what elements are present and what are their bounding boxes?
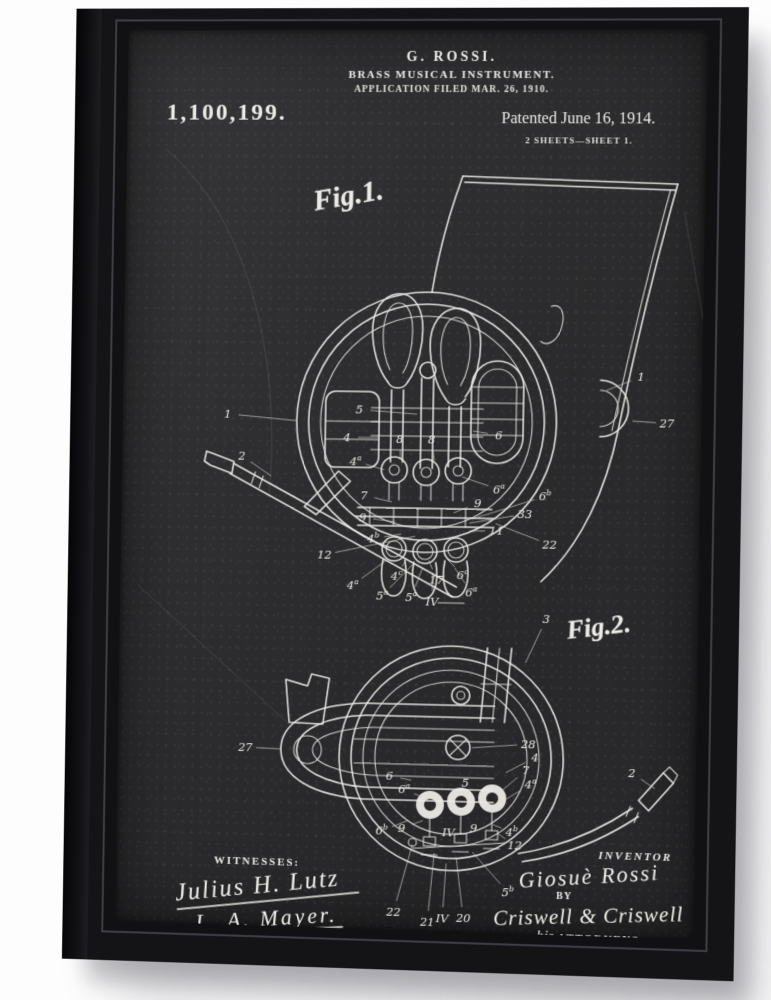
- figure-ref-number: 20: [455, 911, 471, 926]
- figure-ref-number: 9: [398, 821, 406, 835]
- leader-line: [632, 421, 655, 423]
- leader-line: [256, 748, 281, 749]
- chalk-smudge: [161, 149, 277, 498]
- fig1-valve-slides: [325, 293, 525, 470]
- figure-ref-number: 6b: [375, 822, 388, 837]
- figure-ref-number: 2: [237, 449, 245, 463]
- figure-ref-number: 1: [224, 407, 231, 421]
- figure-ref-number: 4a: [523, 776, 537, 792]
- figure-ref-number: 9: [474, 496, 482, 510]
- leader-line: [412, 820, 423, 824]
- leader-line: [370, 410, 417, 414]
- leader-line: [428, 853, 434, 911]
- chalkboard-canvas: G. ROSSI. BRASS MUSICAL INSTRUMENT. APPL…: [115, 29, 708, 939]
- figure-ref-number: IV: [425, 594, 441, 608]
- figure-ref-number: 7: [522, 763, 530, 777]
- leader-line: [472, 744, 517, 749]
- figure-ref-number: 9: [470, 821, 478, 835]
- figure-ref-number: 3: [543, 612, 551, 626]
- figure-ref-number: 5b: [376, 587, 389, 602]
- leader-line: [362, 559, 387, 579]
- leader-line: [525, 629, 541, 663]
- figure-ref-number: 5: [462, 776, 470, 790]
- figure-ref-number: 9: [359, 510, 366, 524]
- figure-ref-number: 8: [428, 432, 436, 446]
- leader-line: [400, 778, 411, 780]
- figure-ref-number: 2: [627, 766, 636, 780]
- figure-ref-number: IV: [441, 825, 457, 840]
- figure-ref-number: 27: [237, 740, 253, 754]
- figure-ref-number: 21: [419, 915, 435, 930]
- figure-ref-number: 6: [386, 769, 394, 783]
- figure-ref-number: 17: [429, 572, 445, 586]
- inventor-block: INVENTOR Giosuè Rossi BY Criswell & Cris…: [489, 847, 689, 940]
- figure-ref-number: 4: [342, 430, 350, 444]
- figure-ref-number: 5a: [405, 589, 418, 604]
- figure-ref-number: 1: [637, 370, 645, 384]
- fig2-top-tubes: [446, 647, 512, 761]
- figure-ref-number: 28: [520, 737, 536, 752]
- figure-ref-number: 6a: [465, 584, 478, 599]
- figure-ref-number: IV: [435, 911, 451, 926]
- leader-line: [455, 858, 462, 907]
- inventor-signature: Giosuè Rossi: [489, 858, 689, 895]
- frame-side-face: [62, 9, 102, 960]
- attorneys-signature: Criswell & Criswell: [489, 902, 688, 931]
- leader-line: [473, 431, 488, 434]
- figure-ref-number: 22: [541, 537, 557, 551]
- figure-ref-number: 6b: [539, 488, 552, 503]
- figure-ref-number: 6: [495, 428, 503, 442]
- figure-ref-number: 22: [385, 904, 401, 919]
- fig2-torn-corner: [285, 673, 329, 724]
- figure-ref-number: 7: [360, 488, 368, 502]
- figure-ref-number: 4a: [346, 577, 360, 592]
- leader-line: [497, 777, 517, 795]
- patent-drawing: 12127546884a794b126a96b3311224a4c176c5b5…: [115, 29, 708, 939]
- picture-frame: G. ROSSI. BRASS MUSICAL INSTRUMENT. APPL…: [62, 7, 749, 981]
- figure-ref-number: 5: [356, 402, 363, 416]
- figure-ref-number: 33: [517, 507, 532, 521]
- figure-ref-number: 6a: [398, 781, 411, 796]
- figure-1-drawing: 12127546884a794b126a96b3311224a4c176c5b5…: [202, 175, 679, 613]
- leader-line: [493, 825, 502, 828]
- leader-line: [396, 844, 412, 902]
- figure-ref-number: 8: [396, 432, 404, 446]
- leader-line: [400, 450, 401, 460]
- product-photo-background: G. ROSSI. BRASS MUSICAL INSTRUMENT. APPL…: [0, 0, 771, 1000]
- figure-ref-number: 27: [658, 416, 675, 430]
- figure-ref-number: 4: [530, 750, 539, 764]
- leader-line: [239, 415, 296, 421]
- figure-ref-number: 4a: [349, 453, 363, 468]
- figure-ref-number: 12: [317, 547, 332, 561]
